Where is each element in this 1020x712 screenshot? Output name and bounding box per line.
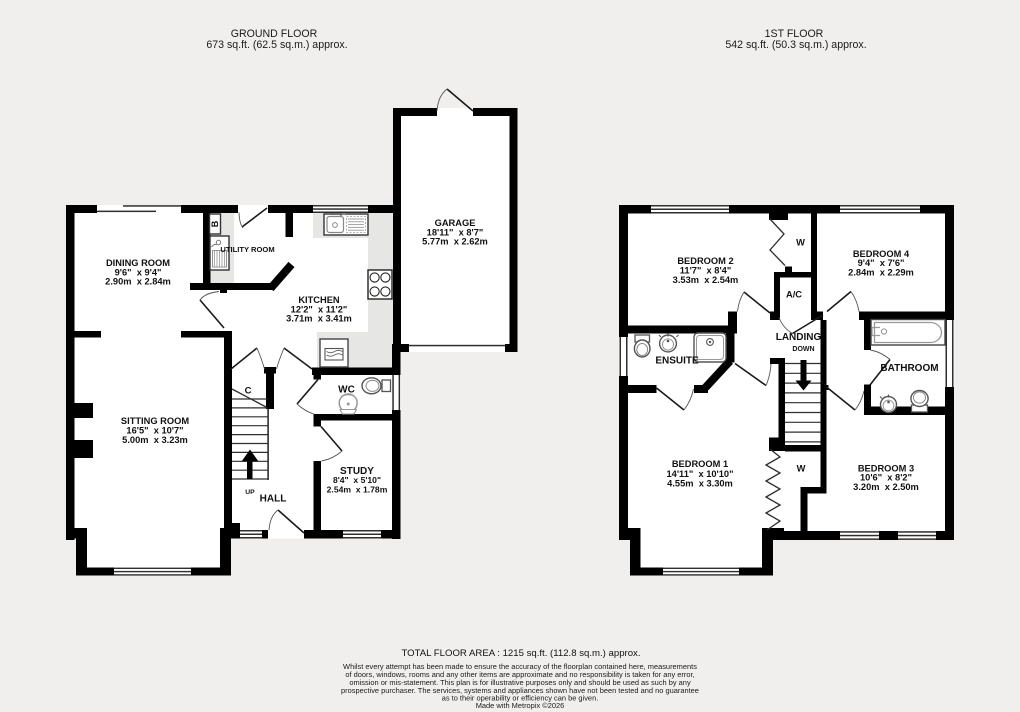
svg-text:DOWN: DOWN <box>792 346 814 353</box>
svg-text:2.84m x 2.29m: 2.84m x 2.29m <box>848 268 914 278</box>
svg-text:2.54m x 1.78m: 2.54m x 1.78m <box>327 485 388 495</box>
svg-text:Made with Metropix ©2026: Made with Metropix ©2026 <box>476 701 565 710</box>
svg-text:11'7" x 8'4": 11'7" x 8'4" <box>680 266 732 276</box>
svg-text:2.90m x 2.84m: 2.90m x 2.84m <box>105 277 171 287</box>
svg-text:W: W <box>797 464 806 474</box>
svg-text:W: W <box>796 238 805 248</box>
svg-text:BEDROOM 2: BEDROOM 2 <box>677 256 733 266</box>
svg-text:TOTAL FLOOR AREA : 1215 sq.ft.: TOTAL FLOOR AREA : 1215 sq.ft. (112.8 sq… <box>401 648 640 659</box>
svg-text:3.53m x 2.54m: 3.53m x 2.54m <box>673 275 739 285</box>
svg-text:3.71m x 3.41m: 3.71m x 3.41m <box>286 314 352 324</box>
svg-text:16'5" x 10'7": 16'5" x 10'7" <box>126 426 183 436</box>
svg-text:BEDROOM 1: BEDROOM 1 <box>672 459 728 469</box>
svg-text:B: B <box>210 220 220 227</box>
svg-text:WC: WC <box>338 385 355 396</box>
svg-text:542 sq.ft. (50.3 sq.m.) approx: 542 sq.ft. (50.3 sq.m.) approx. <box>725 39 866 51</box>
svg-text:BATHROOM: BATHROOM <box>880 363 938 374</box>
svg-text:3.20m x 2.50m: 3.20m x 2.50m <box>853 482 919 492</box>
svg-text:8'4" x 5'10": 8'4" x 5'10" <box>333 475 381 485</box>
svg-text:SITTING ROOM: SITTING ROOM <box>121 416 189 426</box>
svg-text:5.00m x 3.23m: 5.00m x 3.23m <box>122 435 188 445</box>
svg-text:14'11" x 10'10": 14'11" x 10'10" <box>666 469 733 479</box>
svg-text:UP: UP <box>245 489 255 496</box>
svg-text:UTILITY ROOM: UTILITY ROOM <box>220 245 274 254</box>
svg-text:LANDING: LANDING <box>776 332 822 343</box>
svg-text:673 sq.ft. (62.5 sq.m.) approx: 673 sq.ft. (62.5 sq.m.) approx. <box>206 39 347 51</box>
svg-text:4.55m x 3.30m: 4.55m x 3.30m <box>667 479 733 489</box>
svg-text:C: C <box>245 386 252 397</box>
svg-text:ENSUITE: ENSUITE <box>655 356 699 367</box>
svg-text:HALL: HALL <box>260 494 287 505</box>
svg-text:5.77m x 2.62m: 5.77m x 2.62m <box>422 237 488 247</box>
svg-text:9'4" x 7'6": 9'4" x 7'6" <box>858 258 905 268</box>
svg-text:A/C: A/C <box>786 290 802 300</box>
